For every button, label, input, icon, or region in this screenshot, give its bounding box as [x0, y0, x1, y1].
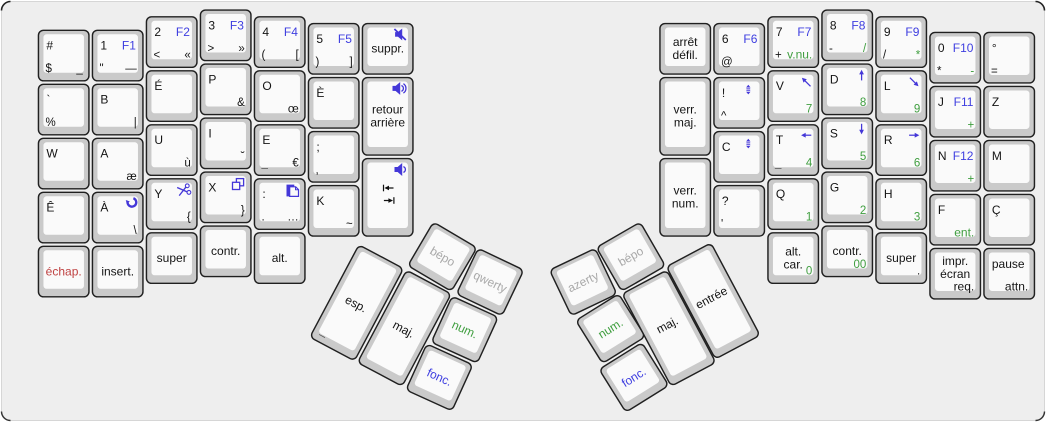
- svg-text:,: ,: [316, 164, 319, 176]
- svg-text:É: É: [154, 78, 162, 93]
- svg-text:F6: F6: [743, 32, 757, 46]
- svg-text:4: 4: [806, 158, 813, 170]
- svg-text:F4: F4: [284, 25, 298, 39]
- svg-text:O: O: [262, 79, 271, 93]
- svg-text:7: 7: [776, 25, 783, 39]
- svg-text:9: 9: [884, 25, 891, 39]
- svg-text:verr.: verr.: [674, 184, 697, 198]
- svg-text::: :: [262, 187, 265, 201]
- svg-text:I: I: [208, 126, 211, 140]
- svg-text:E: E: [262, 133, 270, 147]
- svg-text:L: L: [884, 79, 891, 93]
- svg-text:J: J: [938, 95, 944, 109]
- svg-text:-: -: [829, 43, 833, 55]
- svg-text:»: »: [238, 43, 244, 55]
- svg-text:alt.: alt.: [272, 251, 288, 265]
- svg-text:_: _: [774, 158, 782, 170]
- svg-text:impr.: impr.: [942, 254, 968, 268]
- svg-text:$: $: [46, 63, 53, 75]
- svg-text:_: _: [75, 63, 83, 75]
- svg-text:): ): [316, 56, 320, 68]
- svg-text:contr.: contr.: [211, 244, 240, 258]
- svg-text:F2: F2: [176, 25, 190, 39]
- svg-text:": ": [100, 63, 104, 75]
- svg-text:^: ^: [721, 110, 727, 122]
- svg-text:{: {: [187, 212, 191, 224]
- svg-text:num.: num.: [672, 197, 699, 211]
- svg-text:=: =: [991, 65, 998, 77]
- svg-text:_: _: [261, 158, 269, 170]
- svg-text:€: €: [292, 158, 299, 170]
- svg-text:N: N: [938, 149, 947, 163]
- svg-text:D: D: [830, 72, 839, 86]
- svg-text:*: *: [916, 50, 921, 62]
- svg-text:K: K: [316, 194, 324, 208]
- svg-text:æ: æ: [127, 171, 137, 183]
- svg-text:F10: F10: [953, 41, 974, 55]
- svg-text:insert.: insert.: [101, 264, 134, 278]
- svg-text:6: 6: [722, 32, 729, 46]
- svg-text:#: #: [46, 39, 53, 53]
- svg-text:00: 00: [853, 259, 866, 271]
- svg-text:8: 8: [830, 18, 837, 32]
- svg-text:`: `: [46, 93, 50, 107]
- svg-text:Q: Q: [776, 187, 785, 201]
- svg-text:&: &: [237, 97, 245, 109]
- svg-text:P: P: [208, 72, 216, 86]
- svg-text:B: B: [100, 93, 108, 107]
- svg-text:super: super: [157, 251, 187, 265]
- svg-text:œ: œ: [288, 104, 299, 116]
- svg-text:?: ?: [722, 194, 729, 208]
- svg-text:8: 8: [860, 97, 866, 109]
- svg-text:}: }: [241, 205, 245, 217]
- svg-text:super: super: [886, 251, 916, 265]
- svg-text:—: —: [125, 63, 137, 75]
- svg-text:<: <: [154, 50, 161, 62]
- svg-text:.: .: [917, 266, 920, 278]
- svg-text:C: C: [722, 140, 731, 154]
- svg-text:maj.: maj.: [674, 116, 697, 130]
- svg-text:U: U: [154, 133, 163, 147]
- svg-text:!: !: [722, 86, 725, 100]
- svg-text:.: .: [262, 212, 265, 224]
- svg-text:+: +: [968, 173, 975, 185]
- svg-text:~: ~: [346, 218, 353, 230]
- svg-text:F9: F9: [905, 25, 919, 39]
- svg-text:F1: F1: [122, 39, 136, 53]
- svg-text:F5: F5: [338, 32, 352, 46]
- svg-text:>: >: [208, 43, 215, 55]
- svg-text:suppr.: suppr.: [371, 42, 404, 56]
- svg-text:1: 1: [806, 212, 812, 224]
- svg-text:-: -: [970, 65, 974, 77]
- svg-text:*: *: [937, 65, 942, 77]
- svg-text:G: G: [830, 180, 839, 194]
- svg-text:T: T: [776, 133, 784, 147]
- svg-text:arrière: arrière: [370, 116, 405, 130]
- svg-text:arrêt: arrêt: [673, 35, 698, 49]
- svg-text:3: 3: [208, 18, 215, 32]
- svg-text:F: F: [938, 203, 945, 217]
- svg-text:4: 4: [262, 25, 269, 39]
- svg-text:…: …: [287, 212, 299, 224]
- svg-text:A: A: [100, 147, 108, 161]
- svg-text:+: +: [775, 50, 782, 62]
- svg-text:0: 0: [938, 41, 945, 55]
- svg-text:0: 0: [806, 266, 812, 278]
- svg-text:F7: F7: [797, 25, 811, 39]
- svg-text:2: 2: [860, 205, 866, 217]
- svg-text:2: 2: [154, 25, 161, 39]
- svg-text:H: H: [884, 187, 893, 201]
- svg-text:défil.: défil.: [673, 48, 698, 62]
- svg-text:W: W: [46, 147, 58, 161]
- svg-text:car.: car.: [784, 257, 803, 271]
- svg-text:retour: retour: [372, 103, 403, 117]
- svg-text:1: 1: [100, 39, 107, 53]
- svg-text:%: %: [46, 117, 56, 129]
- svg-text:5: 5: [316, 32, 323, 46]
- svg-text:ù: ù: [184, 158, 190, 170]
- svg-text:attn.: attn.: [1005, 279, 1028, 293]
- svg-text:F11: F11: [954, 95, 974, 109]
- svg-text:pause: pause: [992, 257, 1025, 271]
- svg-text:|: |: [134, 117, 137, 129]
- svg-text:5: 5: [860, 151, 866, 163]
- svg-text:9: 9: [914, 104, 920, 116]
- svg-text:@: @: [721, 56, 733, 68]
- svg-text:Ê: Ê: [46, 200, 54, 215]
- svg-text:Y: Y: [154, 187, 162, 201]
- svg-text:req.: req.: [954, 279, 975, 293]
- svg-text:+: +: [968, 119, 975, 131]
- svg-text:': ': [721, 218, 723, 230]
- svg-text:]: ]: [350, 56, 353, 68]
- svg-text:6: 6: [914, 158, 920, 170]
- svg-text:échap.: échap.: [46, 264, 82, 278]
- svg-text:«: «: [184, 50, 190, 62]
- svg-text:F3: F3: [230, 18, 244, 32]
- svg-text:ent.: ent.: [954, 225, 974, 239]
- svg-text:M: M: [992, 149, 1002, 163]
- svg-text:verr.: verr.: [674, 103, 697, 117]
- svg-text:S: S: [830, 126, 838, 140]
- svg-text:È: È: [316, 85, 324, 100]
- svg-text:7: 7: [806, 104, 812, 116]
- svg-text:°: °: [992, 41, 997, 55]
- svg-text:alt.: alt.: [785, 244, 801, 258]
- svg-text:(: (: [262, 50, 266, 62]
- svg-text:contr.: contr.: [833, 244, 862, 258]
- svg-text:F12: F12: [953, 149, 974, 163]
- svg-text:R: R: [884, 133, 893, 147]
- svg-text:3: 3: [914, 212, 920, 224]
- svg-text:À: À: [100, 200, 108, 215]
- svg-text:Ç: Ç: [992, 203, 1001, 217]
- svg-text:X: X: [208, 180, 216, 194]
- svg-text:v.nu.: v.nu.: [787, 48, 812, 62]
- svg-text:V: V: [776, 79, 784, 93]
- svg-text:Z: Z: [992, 95, 999, 109]
- svg-text:F8: F8: [851, 18, 865, 32]
- svg-text:;: ;: [316, 140, 319, 154]
- svg-text:˘: ˘: [240, 151, 245, 163]
